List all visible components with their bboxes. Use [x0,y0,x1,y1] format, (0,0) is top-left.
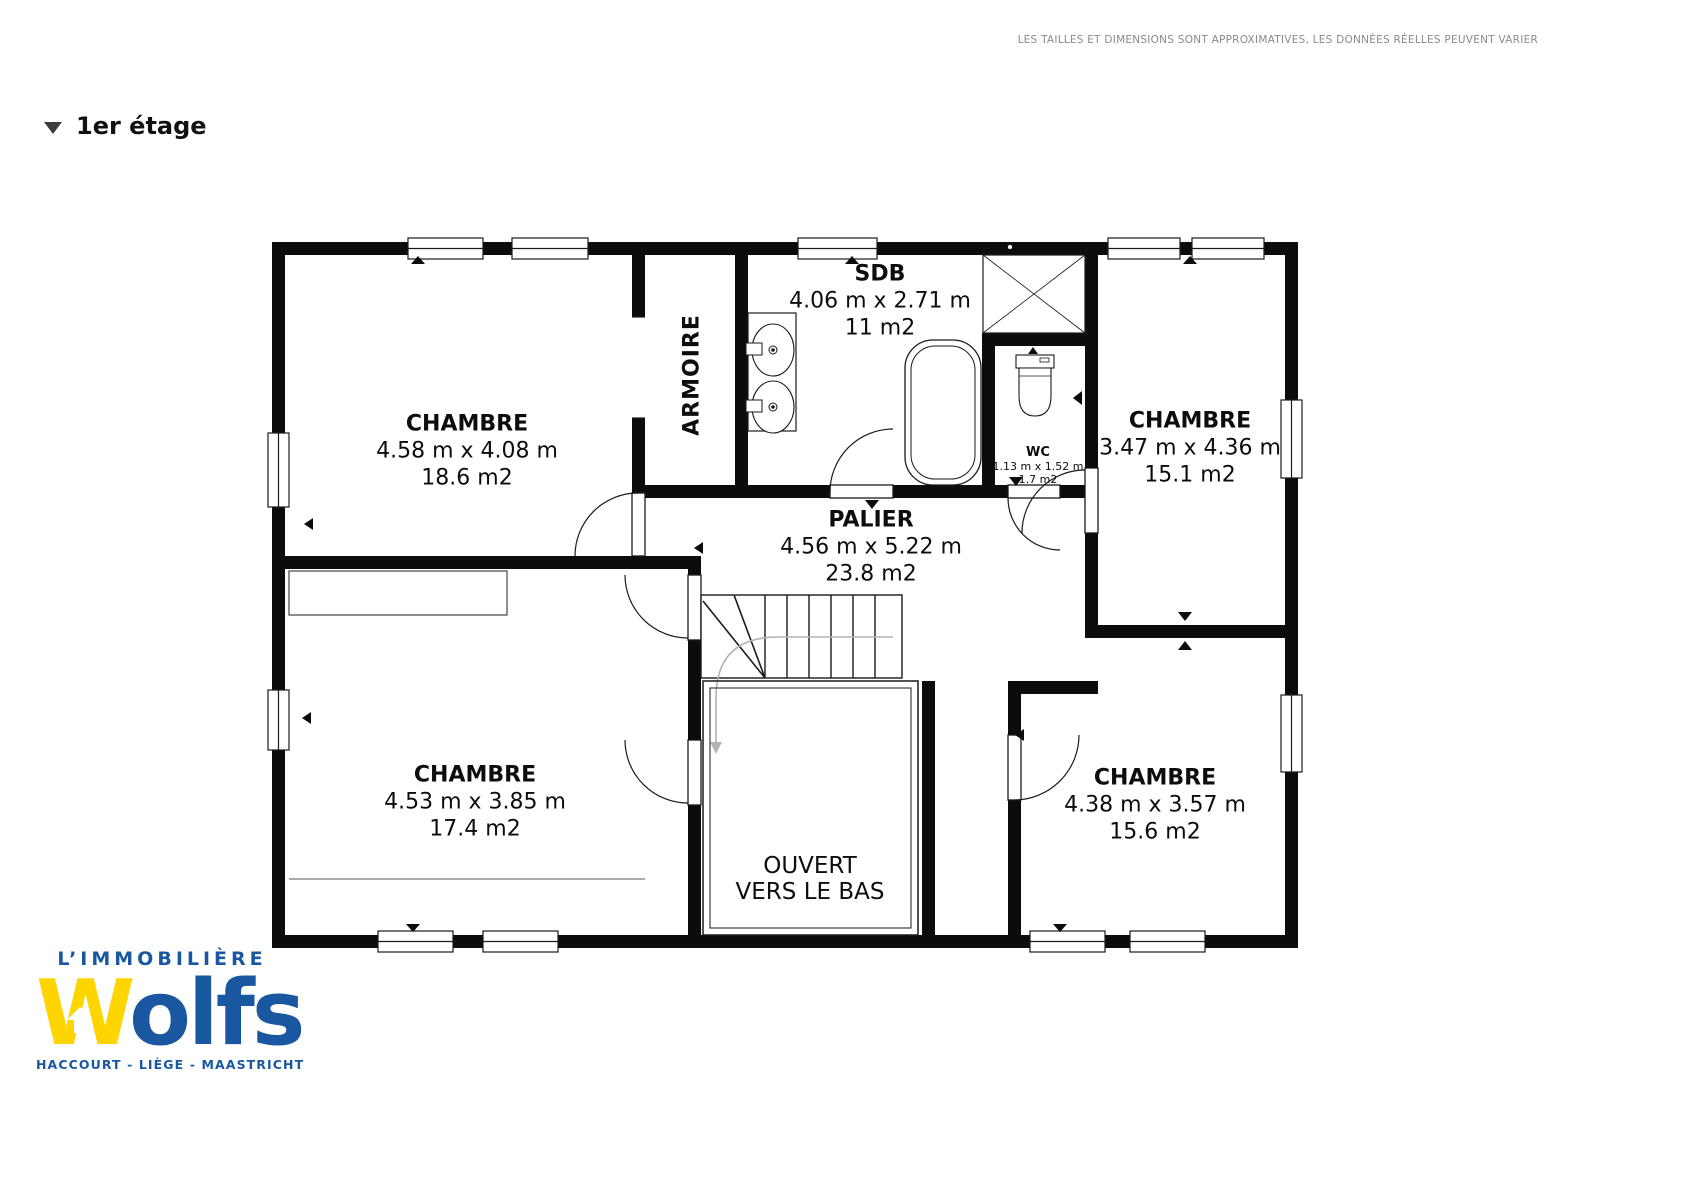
window [378,931,453,952]
closet-label: ARMOIRE [680,314,705,436]
window [408,238,483,259]
logo-cities: HACCOURT - LIÈGE - MAASTRICHT [36,1057,288,1072]
window [268,433,289,507]
room-area: 17.4 m2 [384,816,566,843]
toilet [1016,355,1054,416]
room-label-chambre-bottom-right: CHAMBRE 4.38 m x 3.57 m 15.6 m2 [1064,765,1246,846]
window [512,238,588,259]
room-label-chambre-bottom-left: CHAMBRE 4.53 m x 3.85 m 17.4 m2 [384,762,566,843]
room-dimensions: 4.06 m x 2.71 m [789,288,971,315]
room-name: SDB [789,261,971,288]
room-dimensions: 4.58 m x 4.08 m [376,438,558,465]
room-label-chambre-top-right: CHAMBRE 3.47 m x 4.36 m 15.1 m2 [1099,408,1281,489]
room-dimensions: 4.38 m x 3.57 m [1064,792,1246,819]
open-to-below-label: OUVERT VERS LE BAS [736,853,885,905]
room-dimensions: 3.47 m x 4.36 m [1099,435,1281,462]
open-to-below-line2: VERS LE BAS [736,879,885,905]
room-name: WC [993,446,1084,460]
window [1281,695,1302,772]
room-area: 15.1 m2 [1099,462,1281,489]
door-leaf [1085,468,1098,533]
agency-logo: L’IMMOBILIÈRE Wolfs [36,948,288,1054]
room-label-chambre-top-left: CHAMBRE 4.58 m x 4.08 m 18.6 m2 [376,411,558,492]
window [1108,238,1180,259]
door-leaf [1008,735,1021,800]
room-name: CHAMBRE [376,411,558,438]
open-to-below-line1: OUVERT [736,853,885,879]
room-area: 15.6 m2 [1064,819,1246,846]
floorplan-page: LES TAILLES ET DIMENSIONS SONT APPROXIMA… [0,0,1696,1200]
room-area: 1.7 m2 [993,473,1084,486]
house-up-arrow-icon [66,1006,94,1034]
door-leaf [632,493,645,556]
room-label-sdb: SDB 4.06 m x 2.71 m 11 m2 [789,261,971,342]
window [798,238,877,259]
window [1030,931,1105,952]
room-label-wc: WC 1.13 m x 1.52 m 1.7 m2 [993,446,1084,486]
room-name: CHAMBRE [1064,765,1246,792]
window [1192,238,1264,259]
room-area: 18.6 m2 [376,465,558,492]
window [483,931,558,952]
shower [983,245,1085,334]
window [1130,931,1205,952]
bathtub [905,340,981,485]
room-area: 11 m2 [789,315,971,342]
room-label-palier: PALIER 4.56 m x 5.22 m 23.8 m2 [780,507,962,588]
room-name: PALIER [780,507,962,534]
door-leaf [830,485,893,498]
room-name: CHAMBRE [1099,408,1281,435]
window [1281,400,1302,478]
closet-opening [632,317,645,418]
room-name: CHAMBRE [384,762,566,789]
room-area: 23.8 m2 [780,561,962,588]
door-leaf [688,740,701,805]
room-dimensions: 4.53 m x 3.85 m [384,789,566,816]
door-leaf [688,575,701,640]
room-dimensions: 4.56 m x 5.22 m [780,534,962,561]
room-dimensions: 1.13 m x 1.52 m [993,460,1084,473]
logo-letters-olfs: olfs [129,961,302,1066]
window [268,690,289,750]
